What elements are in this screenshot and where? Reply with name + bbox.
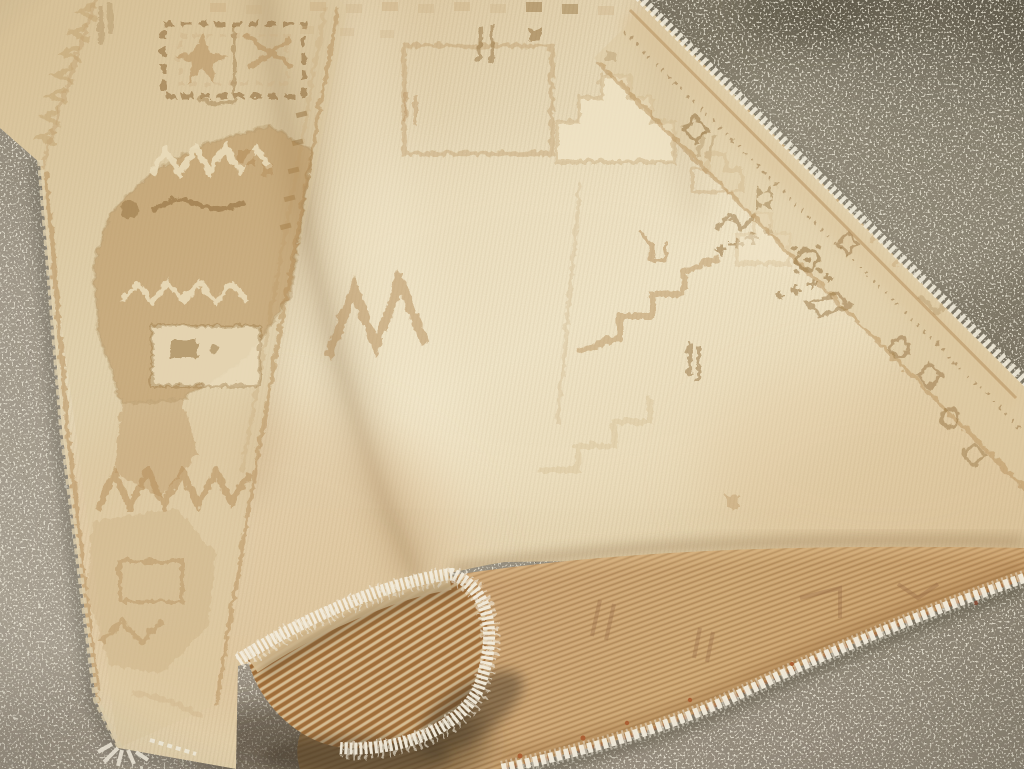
rug-photograph: Folded vintage cream and tan handwoven r…: [0, 0, 1024, 769]
vignette: [0, 0, 1024, 769]
rug-scene: [0, 0, 1024, 769]
